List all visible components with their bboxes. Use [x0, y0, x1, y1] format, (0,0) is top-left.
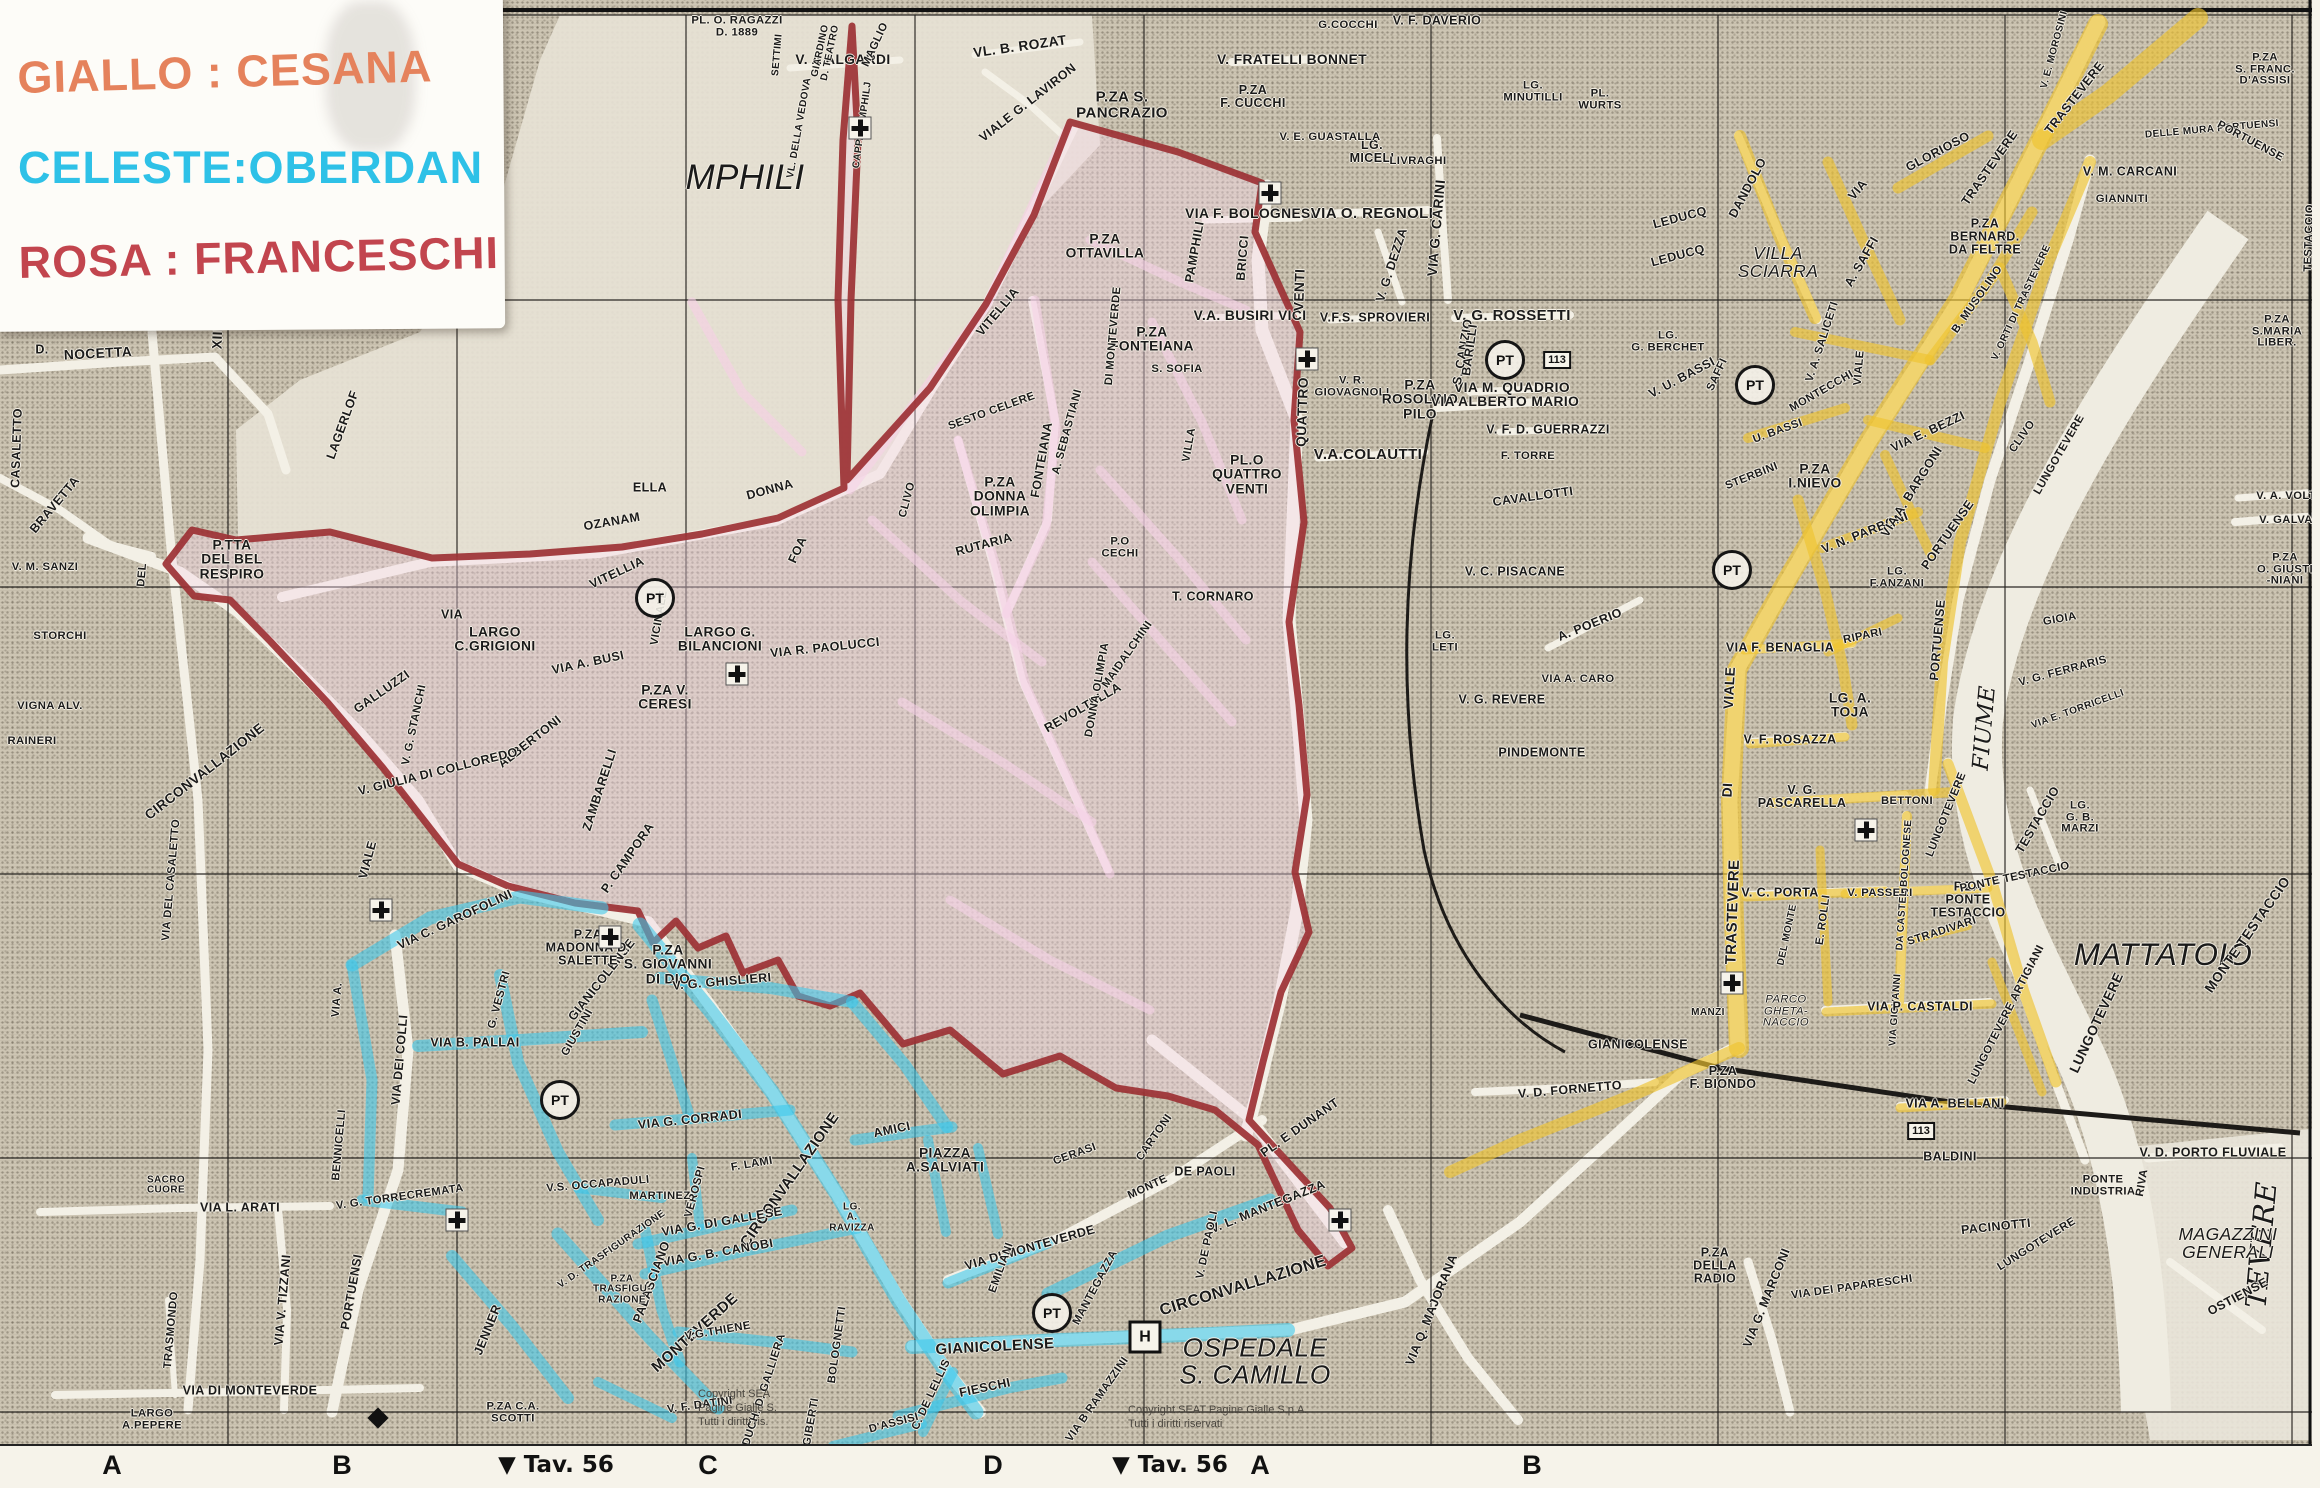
grid-column-letter: D — [983, 1450, 1003, 1481]
grid-column-letter: B — [332, 1450, 352, 1481]
post-office-pt-icon: PT — [1032, 1293, 1072, 1333]
first-aid-cross-icon — [1296, 348, 1319, 371]
first-aid-cross-icon — [1259, 182, 1282, 205]
route-113-badge: 113 — [1543, 351, 1571, 369]
first-aid-cross-icon — [726, 663, 749, 686]
post-office-pt-icon: PT — [1735, 365, 1775, 405]
grid-column-letter: C — [698, 1450, 718, 1481]
grid-column-letter: B — [1522, 1450, 1542, 1481]
post-office-pt-icon: PT — [635, 578, 675, 618]
handwritten-legend-card: GIALLO : CESANACELESTE:OBERDANROSA : FRA… — [0, 0, 505, 332]
post-office-pt-icon: PT — [1485, 340, 1525, 380]
church-icon — [367, 1407, 388, 1428]
grid-column-letter: A — [102, 1450, 122, 1481]
route-113-badge: 113 — [1907, 1122, 1935, 1140]
legend-line: CELESTE:OBERDAN — [18, 142, 483, 194]
map-bottom-margin: ABCDAB▼ Tav. 56▼ Tav. 56 — [0, 1444, 2320, 1488]
first-aid-cross-icon — [1855, 819, 1878, 842]
first-aid-cross-icon — [849, 117, 872, 140]
legend-line: ROSA : FRANCESCHI — [18, 227, 499, 289]
post-office-pt-icon: PT — [1712, 550, 1752, 590]
first-aid-cross-icon — [370, 899, 393, 922]
adjacent-sheet-marker: ▼ Tav. 56 — [1112, 1452, 1228, 1478]
adjacent-sheet-marker: ▼ Tav. 56 — [498, 1452, 614, 1478]
scanned-city-map: MPHILIPL. O. RAGAZZI D. 1889V. A ALGARDI… — [0, 0, 2320, 1488]
map-right-margin — [2312, 0, 2320, 1488]
hospital-h-icon: H — [1129, 1321, 1162, 1354]
first-aid-cross-icon — [1329, 1209, 1352, 1232]
post-office-pt-icon: PT — [540, 1080, 580, 1120]
first-aid-cross-icon — [446, 1209, 469, 1232]
first-aid-cross-icon — [599, 926, 622, 949]
first-aid-cross-icon — [1721, 972, 1744, 995]
grid-column-letter: A — [1250, 1450, 1270, 1481]
